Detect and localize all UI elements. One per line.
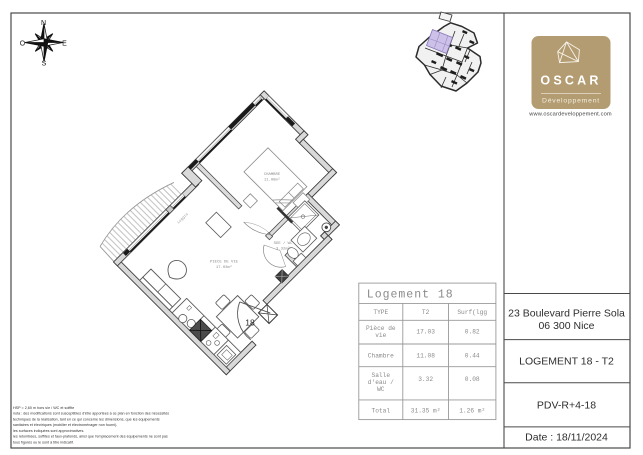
svg-text:Total: Total — [372, 408, 391, 415]
svg-text:PDV-R+4-18: PDV-R+4-18 — [537, 400, 596, 412]
svg-text:S: S — [42, 61, 47, 68]
svg-text:18: 18 — [245, 318, 255, 328]
svg-text:23 Boulevard Pierre Sola: 23 Boulevard Pierre Sola — [508, 308, 625, 320]
svg-text:CHAMBRE: CHAMBRE — [264, 173, 281, 177]
svg-text:nota : des modifications sont: nota : des modifications sont susceptibl… — [13, 412, 169, 416]
svg-text:17.03: 17.03 — [416, 329, 435, 336]
svg-text:sanitaires et électriques (mob: sanitaires et électriques (mobilier et é… — [13, 423, 117, 427]
svg-text:1.26 m²: 1.26 m² — [459, 408, 485, 415]
svg-text:Développement: Développement — [542, 98, 600, 105]
svg-text:PIECE DE VIE: PIECE DE VIE — [210, 261, 239, 265]
svg-text:0.44: 0.44 — [465, 353, 480, 360]
svg-text:Chambre: Chambre — [368, 353, 394, 360]
svg-text:Surf(lgg: Surf(lgg — [457, 309, 487, 316]
svg-text:O: O — [20, 41, 26, 48]
svg-text:11.08: 11.08 — [416, 353, 435, 360]
svg-text:3.32m²: 3.32m² — [276, 246, 290, 252]
svg-text:techniques de la réalisation,: techniques de la réalisation, tant en ce… — [13, 417, 160, 421]
svg-text:Pièce de: Pièce de — [366, 325, 396, 332]
svg-text:N: N — [41, 20, 46, 27]
svg-text:vie: vie — [375, 332, 386, 339]
svg-text:d'eau /: d'eau / — [368, 379, 394, 386]
svg-text:HSP = 2,60 m hors s/e / WC et: HSP = 2,60 m hors s/e / WC et soffite — [13, 406, 74, 410]
svg-text:Logement 18: Logement 18 — [367, 289, 454, 302]
svg-text:Loggia: Loggia — [176, 212, 190, 226]
svg-text:0.08: 0.08 — [465, 376, 480, 383]
svg-text:T2: T2 — [422, 309, 430, 316]
svg-text:0.82: 0.82 — [465, 329, 480, 336]
svg-text:06 300 Nice: 06 300 Nice — [538, 320, 594, 332]
svg-text:17.03m²: 17.03m² — [216, 264, 232, 270]
svg-text:OSCAR: OSCAR — [540, 74, 601, 88]
svg-text:TYPE: TYPE — [373, 309, 388, 316]
svg-text:Date : 18/11/2024: Date : 18/11/2024 — [525, 432, 608, 444]
svg-text:SDE / WC: SDE / WC — [274, 241, 293, 246]
svg-text:E: E — [62, 41, 67, 48]
svg-text:3.32: 3.32 — [418, 376, 433, 383]
svg-text:WC: WC — [377, 386, 385, 393]
svg-text:les retombées, soffites et fau: les retombées, soffites et faux-plafonds… — [13, 435, 168, 439]
svg-text:31.35 m²: 31.35 m² — [411, 408, 441, 415]
svg-text:LOGEMENT 18 - T2: LOGEMENT 18 - T2 — [519, 356, 614, 368]
svg-text:Salle: Salle — [372, 372, 391, 379]
svg-text:les surfaces indiquées sont ap: les surfaces indiquées sont approximativ… — [13, 429, 84, 433]
svg-text:tous figurés ou le sont à titr: tous figurés ou le sont à titre indicati… — [13, 440, 74, 444]
svg-text:www.oscardeveloppement.com: www.oscardeveloppement.com — [528, 112, 612, 118]
